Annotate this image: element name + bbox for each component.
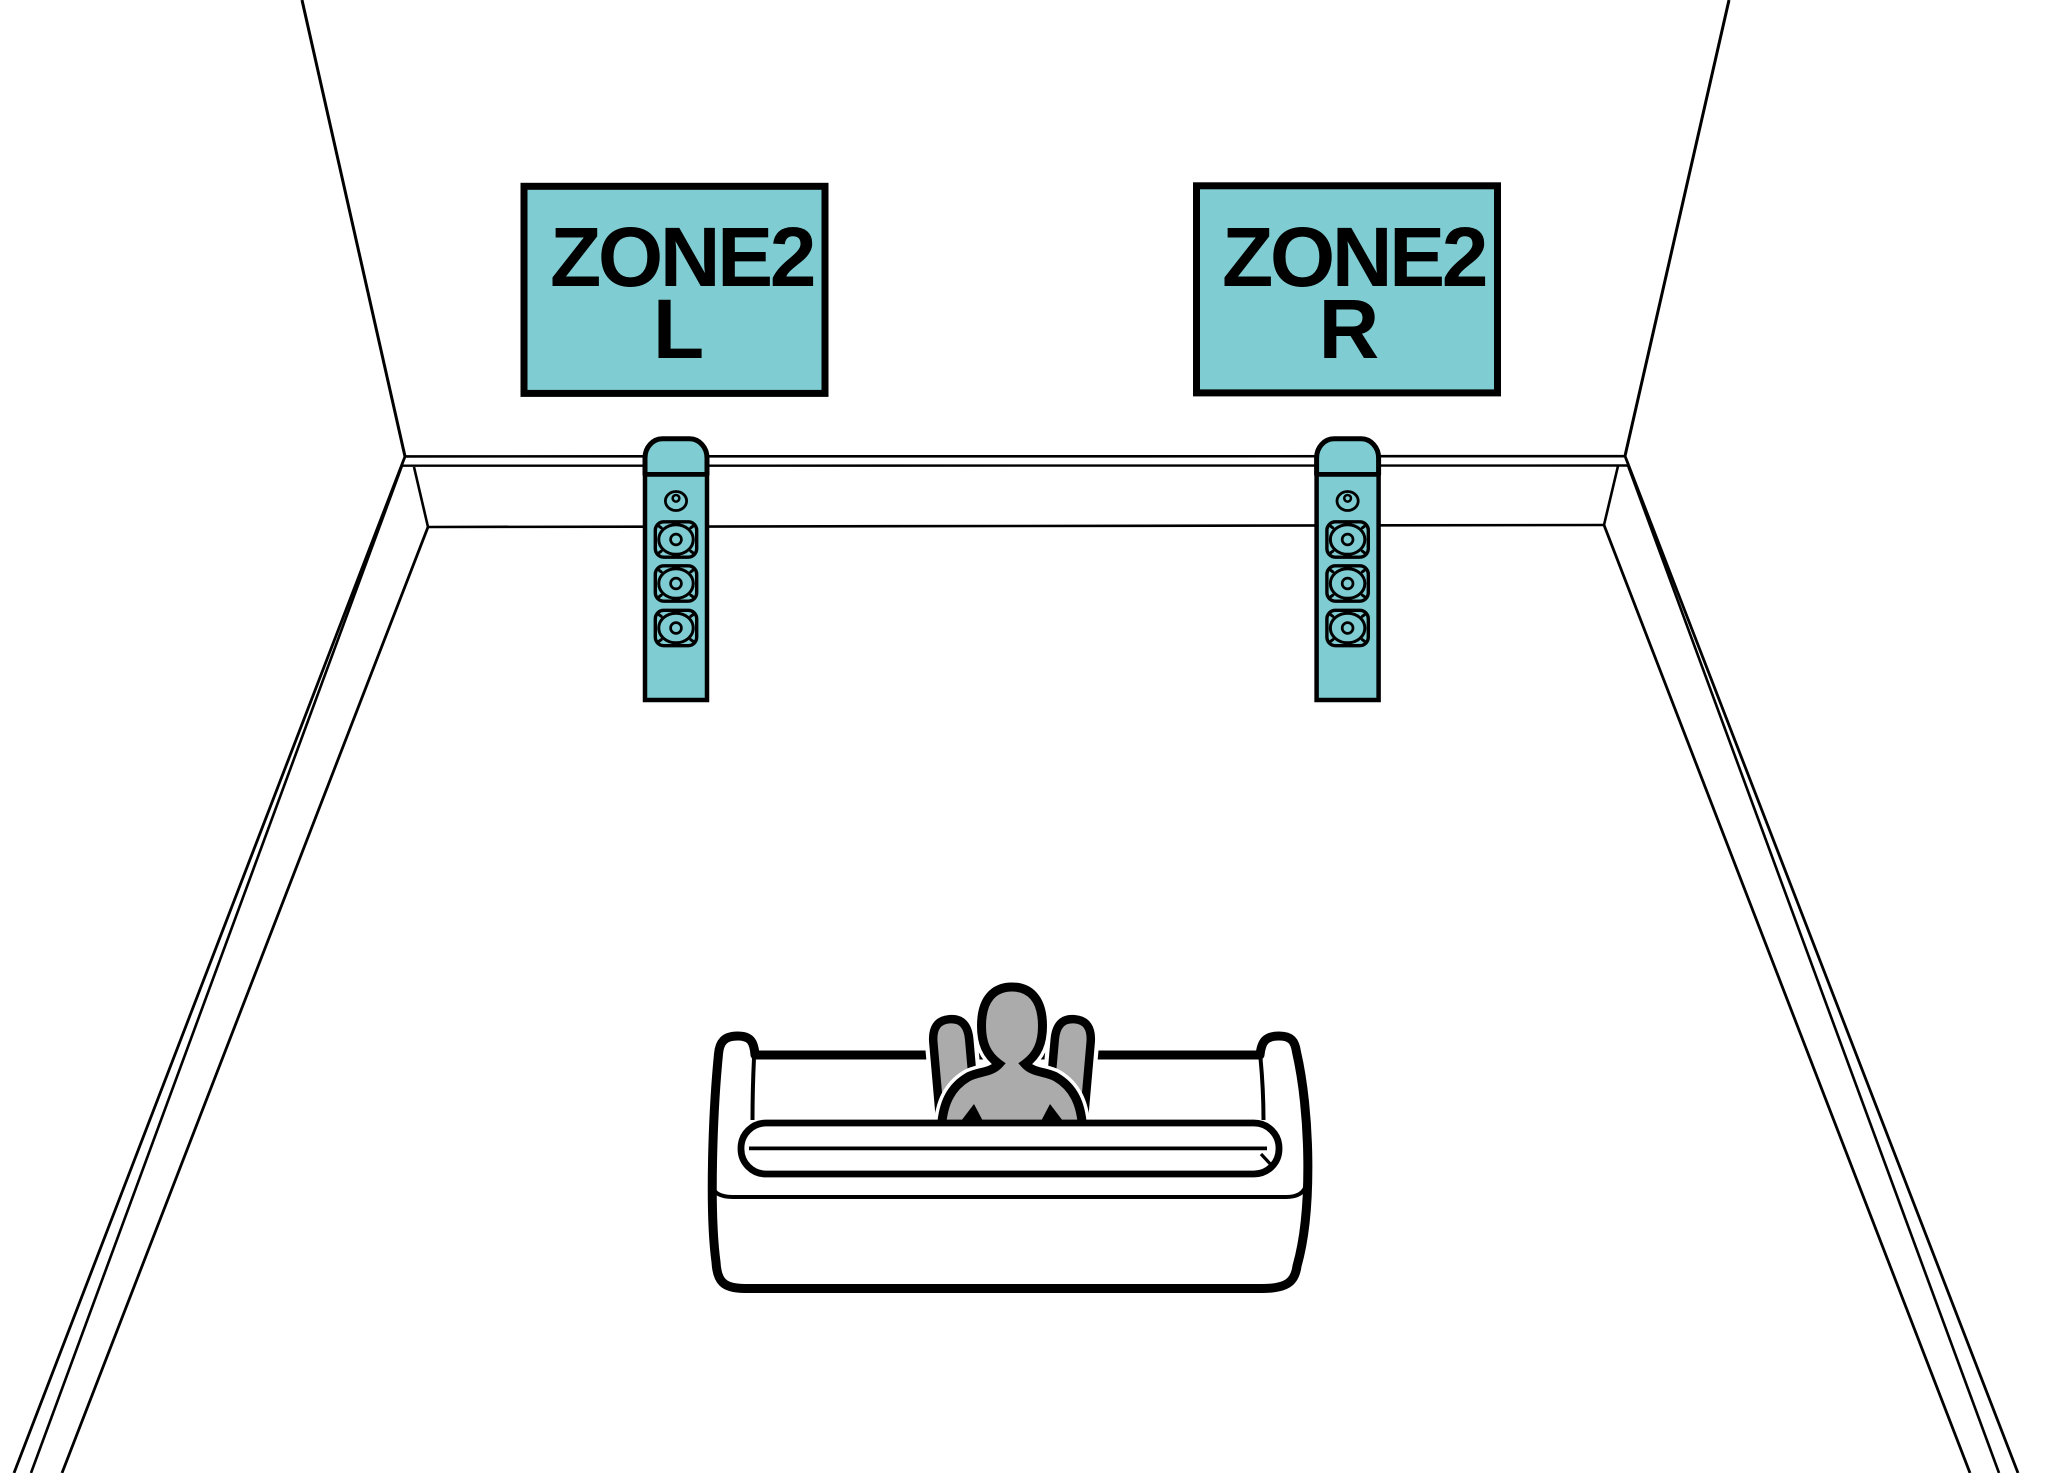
- svg-text:L: L: [653, 282, 704, 376]
- svg-text:R: R: [1319, 282, 1380, 376]
